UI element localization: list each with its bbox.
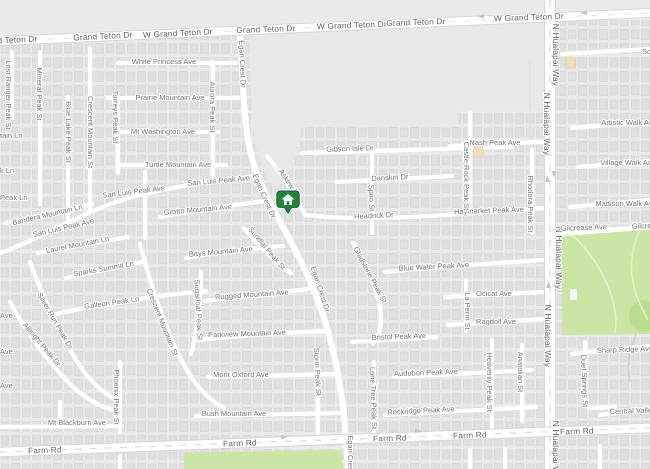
street-label: Egan Crest Dr [346, 435, 355, 469]
street-label: Egan Crest Dr [237, 40, 248, 88]
street-label: Anatolian St [516, 352, 525, 393]
street-label: Bristol Peak Ave [372, 331, 427, 342]
street-label: Gilcrease Ave [632, 220, 650, 231]
street-label: Aurora Peak St [208, 82, 217, 134]
street-label: Rhodora Peak St [526, 175, 535, 233]
street-label: Artistic Walk Ave [601, 118, 650, 127]
road-label: Farm Rd [223, 437, 257, 448]
street-label: Prairie Mountain Ave [135, 93, 204, 102]
road-label: Farm Rd [560, 425, 594, 436]
street-label: Sce [642, 47, 650, 56]
street-label: Ave [0, 381, 13, 390]
map-viewport[interactable]: Grand Teton Dr Grand Teton Dr W Grand Te… [0, 0, 650, 469]
street-label: k Ln [0, 166, 14, 175]
street-label: Turtle Mountain Ave [145, 160, 211, 169]
park-building [570, 289, 577, 300]
street-label: Bush Mountain Ave [202, 409, 267, 418]
house-door [287, 201, 290, 205]
road-label: Grand Teton Dr [386, 16, 446, 28]
road-label: Farm Rd [373, 432, 407, 443]
street-label: Lost Ranger Peak St [4, 60, 13, 130]
street-label: Mt Washington Ave [131, 127, 195, 136]
road-label: Farm Rd [453, 429, 487, 440]
street-label: La Perm St [463, 292, 472, 330]
road-label: N Hualapai Way [554, 227, 564, 290]
street-label: Peak Ln [0, 193, 28, 202]
street-label: Heavenly Peak St [485, 352, 494, 413]
street-label: Sharp Ridge Ave [597, 344, 650, 355]
street-label: Mineral Peak St [35, 68, 44, 122]
street-label: Crescent Mountain St [86, 96, 95, 169]
street-label: Duet Springs St [579, 355, 590, 409]
street-label: Ragdoll Ave [476, 317, 516, 326]
street-label: Mont Oxford Ave [213, 370, 269, 379]
street-label: Gilcrease Ave [561, 222, 607, 233]
street-label: Madison Walk Ave [595, 199, 650, 208]
street-label: Ocicat Ave [476, 289, 512, 298]
street-label: Castle Rock Peak St [462, 142, 471, 212]
street-label: Torreys Peak St [111, 91, 120, 145]
street-label: Central Valley Ave [609, 405, 650, 416]
street-label: Mt Blackburn Ave [48, 418, 106, 427]
street-label: Gibson Isle Dr [326, 143, 374, 154]
street-label: Village Walk Ave [600, 158, 650, 167]
street-label: Phoenix Peak St [112, 369, 121, 425]
road-label: N Hualapai Way [542, 93, 552, 156]
road-label: Grand Teton Dr [236, 23, 296, 35]
street-label: tain Ln [0, 131, 23, 140]
road-label: Farm Rd [28, 444, 62, 455]
street-label: Spiro St [367, 184, 377, 212]
street-label: Ave [0, 347, 13, 356]
street-label: White Princess Ave [132, 57, 196, 66]
map-svg: Grand Teton Dr Grand Teton Dr W Grand Te… [0, 0, 650, 469]
road-label: N Hualapai Way [543, 305, 553, 368]
street-label: Nash Peak Ave [469, 138, 520, 147]
street-label: Blue Lake Peak St [64, 101, 73, 164]
park-strip [184, 450, 343, 469]
street-label: Ave [0, 311, 13, 320]
road-label: N Hualapai Way [551, 24, 561, 87]
